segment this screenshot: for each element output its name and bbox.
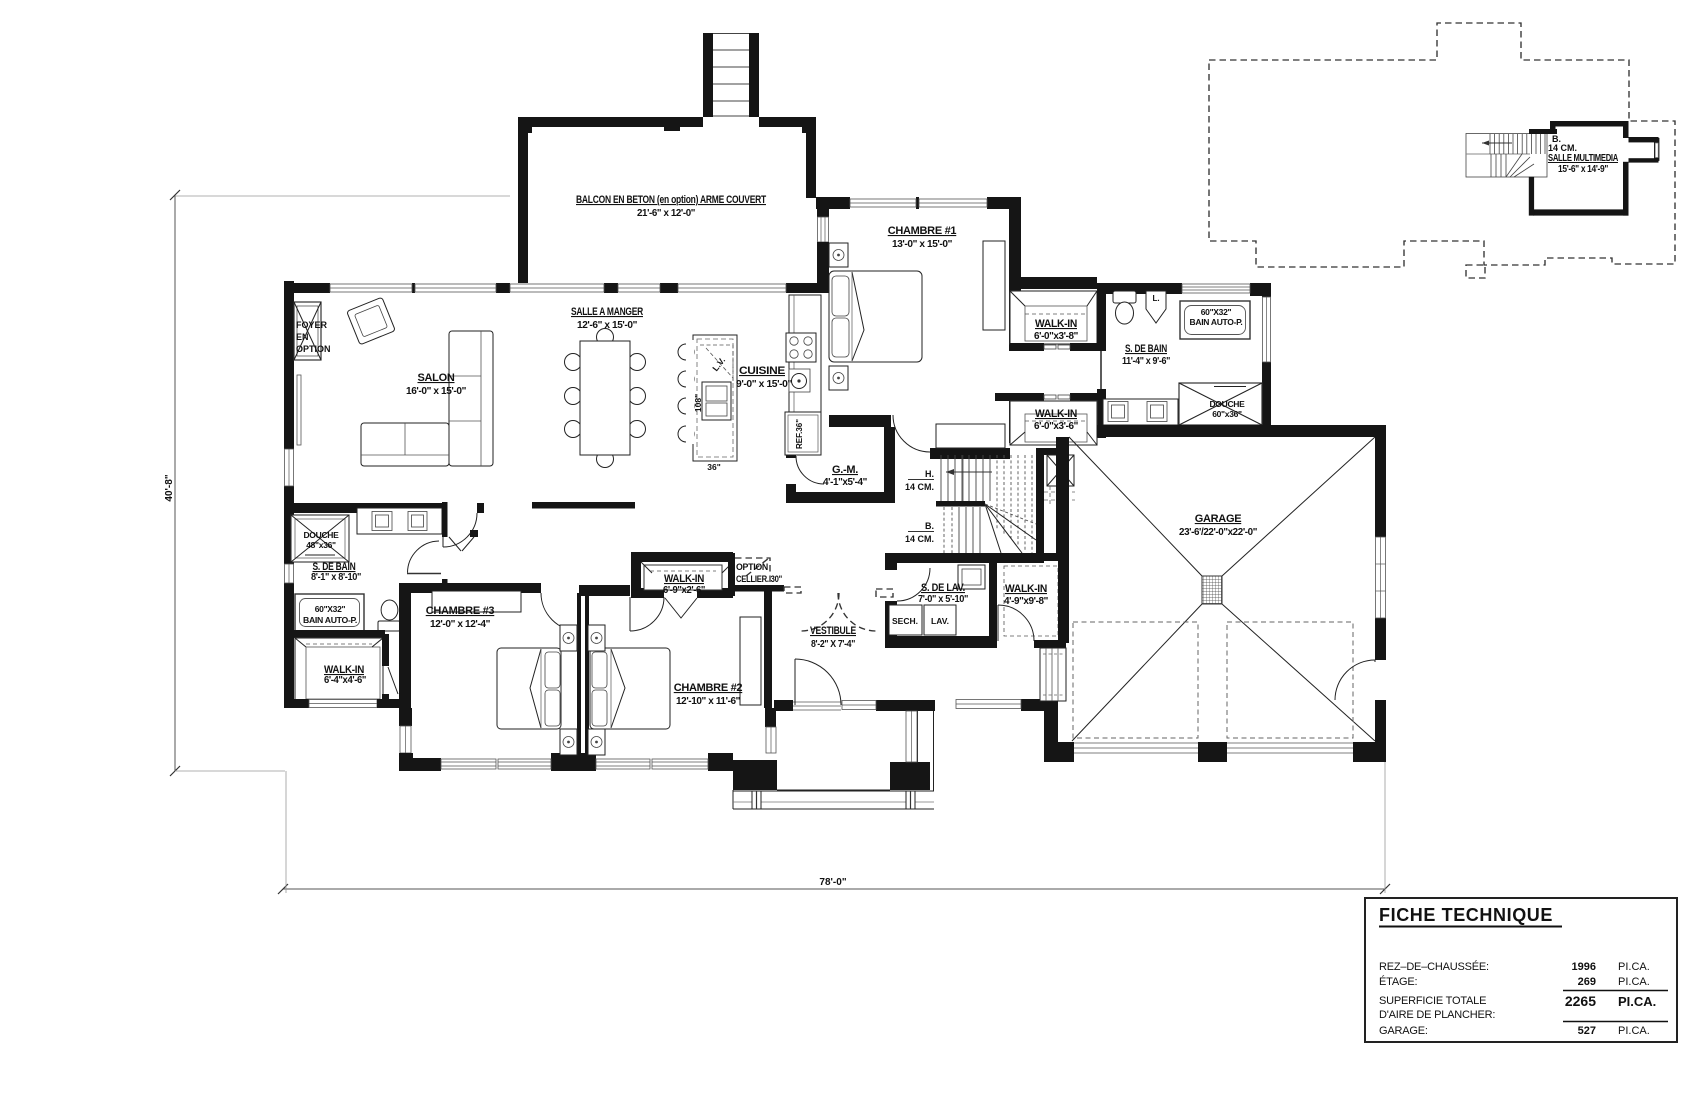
svg-text:108": 108" xyxy=(693,394,703,412)
svg-text:B.: B. xyxy=(925,521,934,531)
svg-text:8'-1" x 8'-10": 8'-1" x 8'-10" xyxy=(311,572,362,583)
svg-text:36": 36" xyxy=(707,462,721,472)
svg-text:FOYER: FOYER xyxy=(296,320,328,330)
svg-text:DOUCHE: DOUCHE xyxy=(303,530,339,540)
svg-text:CHAMBRE #2: CHAMBRE #2 xyxy=(674,682,743,694)
svg-text:269: 269 xyxy=(1578,976,1596,988)
svg-text:14 CM.: 14 CM. xyxy=(905,482,934,492)
svg-text:CHAMBRE #3: CHAMBRE #3 xyxy=(426,605,495,617)
svg-text:BAIN AUTO-P.: BAIN AUTO-P. xyxy=(303,615,357,625)
svg-text:S. DE LAV.: S. DE LAV. xyxy=(921,582,965,594)
svg-text:14 CM.: 14 CM. xyxy=(905,534,934,544)
svg-text:GARAGE:: GARAGE: xyxy=(1379,1025,1428,1037)
svg-text:6'-9"x2'-6": 6'-9"x2'-6" xyxy=(663,585,706,596)
svg-text:60"X32": 60"X32" xyxy=(315,604,346,614)
svg-text:6'-4"x4'-6": 6'-4"x4'-6" xyxy=(324,675,367,686)
svg-text:SALLE MULTIMEDIA: SALLE MULTIMEDIA xyxy=(1548,153,1618,164)
svg-text:SALON: SALON xyxy=(417,372,454,384)
svg-text:REF.36": REF.36" xyxy=(795,419,804,449)
svg-text:SUPERFICIE TOTALE: SUPERFICIE TOTALE xyxy=(1379,995,1486,1007)
svg-text:L.: L. xyxy=(1152,294,1159,303)
svg-text:15'-6" x 14'-9": 15'-6" x 14'-9" xyxy=(1558,164,1609,175)
svg-text:12'-6" x 15'-0": 12'-6" x 15'-0" xyxy=(577,320,638,331)
svg-text:SECH.: SECH. xyxy=(892,616,918,626)
svg-text:VESTIBULE: VESTIBULE xyxy=(810,625,856,637)
svg-text:21'-6" x 12'-0": 21'-6" x 12'-0" xyxy=(637,208,696,219)
svg-text:REZ–DE–CHAUSSÉE:: REZ–DE–CHAUSSÉE: xyxy=(1379,960,1489,973)
svg-text:BAIN AUTO-P.: BAIN AUTO-P. xyxy=(1190,317,1243,327)
svg-text:1996: 1996 xyxy=(1572,961,1596,973)
svg-text:FICHE TECHNIQUE: FICHE TECHNIQUE xyxy=(1379,905,1553,925)
svg-text:2265: 2265 xyxy=(1565,993,1596,1009)
svg-text:40'-8": 40'-8" xyxy=(164,474,175,501)
svg-text:78'-0": 78'-0" xyxy=(819,877,846,888)
svg-text:WALK-IN: WALK-IN xyxy=(664,573,704,585)
svg-text:G.-M.: G.-M. xyxy=(832,464,858,476)
svg-text:OPTION: OPTION xyxy=(296,344,331,354)
svg-text:CUISINE: CUISINE xyxy=(739,365,785,377)
svg-text:S. DE BAIN: S. DE BAIN xyxy=(1125,343,1167,355)
svg-text:PI.CA.: PI.CA. xyxy=(1618,994,1656,1009)
svg-text:BALCON EN BETON (en option) A: BALCON EN BETON (en option) ARME COUVERT xyxy=(576,194,766,206)
svg-text:11'-4" x 9'-6": 11'-4" x 9'-6" xyxy=(1122,356,1171,367)
svg-text:12'-0" x 12'-4": 12'-0" x 12'-4" xyxy=(430,619,491,630)
svg-text:14 CM.: 14 CM. xyxy=(1548,143,1577,153)
svg-text:ÉTAGE:: ÉTAGE: xyxy=(1379,975,1417,988)
svg-text:PI.CA.: PI.CA. xyxy=(1618,1025,1650,1037)
svg-text:7'-0" x 5'-10": 7'-0" x 5'-10" xyxy=(918,594,969,605)
svg-text:D'AIRE DE PLANCHER:: D'AIRE DE PLANCHER: xyxy=(1379,1009,1495,1021)
svg-text:EN: EN xyxy=(296,332,309,342)
svg-text:60"X32": 60"X32" xyxy=(1201,307,1232,317)
svg-text:WALK-IN: WALK-IN xyxy=(1035,408,1077,420)
svg-text:LAV.: LAV. xyxy=(931,616,949,626)
svg-text:6'-0"x3'-6": 6'-0"x3'-6" xyxy=(1034,421,1079,432)
svg-text:PI.CA.: PI.CA. xyxy=(1618,961,1650,973)
svg-text:4'-1"x5'-4": 4'-1"x5'-4" xyxy=(823,477,868,488)
svg-text:9'-0" x 15'-0": 9'-0" x 15'-0" xyxy=(736,379,793,390)
svg-text:4'-9"x9'-8": 4'-9"x9'-8" xyxy=(1004,596,1049,607)
svg-text:8'-2" X 7'-4": 8'-2" X 7'-4" xyxy=(811,639,856,650)
svg-text:13'-0" x 15'-0": 13'-0" x 15'-0" xyxy=(892,239,953,250)
svg-text:PI.CA.: PI.CA. xyxy=(1618,976,1650,988)
svg-text:16'-0" x 15'-0": 16'-0" x 15'-0" xyxy=(406,386,467,397)
svg-text:6'-0"x3'-8": 6'-0"x3'-8" xyxy=(1034,331,1079,342)
svg-text:GARAGE: GARAGE xyxy=(1195,513,1241,525)
svg-text:H.: H. xyxy=(925,469,934,479)
svg-text:60"x36": 60"x36" xyxy=(1212,409,1242,419)
svg-text:CHAMBRE #1: CHAMBRE #1 xyxy=(888,225,957,237)
svg-text:23'-6'/22'-0"x22'-0": 23'-6'/22'-0"x22'-0" xyxy=(1179,527,1258,538)
svg-text:DOUCHE: DOUCHE xyxy=(1209,399,1245,409)
svg-text:WALK-IN: WALK-IN xyxy=(1035,318,1077,330)
svg-text:WALK-IN: WALK-IN xyxy=(1005,583,1047,595)
svg-text:OPTION: OPTION xyxy=(736,562,768,572)
svg-text:48"x36": 48"x36" xyxy=(306,540,336,550)
svg-text:CELLIER. 30": CELLIER. 30" xyxy=(736,574,782,584)
svg-text:12'-10" x 11'-6": 12'-10" x 11'-6" xyxy=(676,696,741,707)
svg-text:527: 527 xyxy=(1578,1025,1596,1037)
svg-text:SALLE A MANGER: SALLE A MANGER xyxy=(571,306,643,318)
